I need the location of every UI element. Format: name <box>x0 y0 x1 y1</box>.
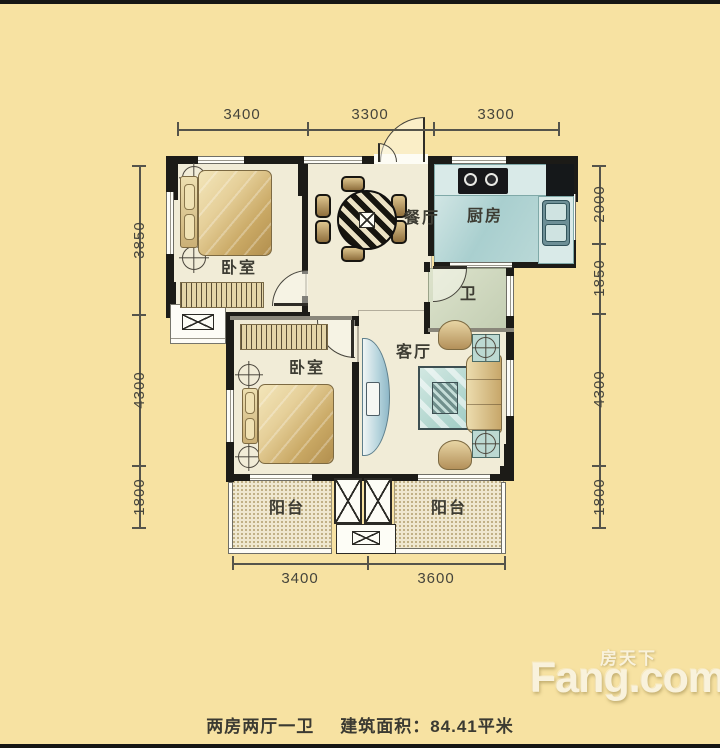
dim-label-bottom: 3600 <box>386 570 486 588</box>
room-label-living: 客厅 <box>390 344 438 362</box>
armchair-icon <box>438 320 472 350</box>
window-dining-top <box>304 156 362 164</box>
balcony-railing <box>501 482 506 554</box>
dim-tick <box>433 122 435 136</box>
dim-line-top <box>177 129 559 131</box>
wall-segment <box>302 162 308 274</box>
top-frame-bar <box>0 0 720 4</box>
bedroom2-door-leaf <box>351 320 354 358</box>
dim-label-top: 3300 <box>320 106 420 124</box>
bay-window-symbol <box>182 314 214 330</box>
dim-label-right: 1800 <box>591 457 609 537</box>
bed-icon <box>258 384 334 464</box>
dim-tick <box>504 556 506 570</box>
room-label-bath: 卫 <box>458 286 480 304</box>
nightstand-icon <box>238 446 260 468</box>
room-label-dining: 餐厅 <box>398 210 446 228</box>
room-label-bedroom1: 卧室 <box>200 260 278 278</box>
caption-layout: 两房两厅一卫 <box>206 717 314 736</box>
burner-icon <box>464 173 477 186</box>
wall-segment <box>352 362 359 478</box>
nightstand-icon <box>238 364 260 386</box>
side-table-symbol <box>475 433 496 454</box>
pillow-icon <box>245 392 255 414</box>
side-table-symbol <box>475 337 496 358</box>
tv-icon <box>366 382 380 416</box>
sink-basin <box>545 224 567 242</box>
dim-label-top: 3300 <box>446 106 546 124</box>
bed-icon <box>198 170 272 256</box>
wall-segment <box>424 262 430 272</box>
dim-label-top: 3400 <box>192 106 292 124</box>
dim-label-right: 4300 <box>591 349 609 429</box>
wardrobe-icon <box>240 324 328 350</box>
pillow-icon <box>184 214 195 240</box>
dim-tick <box>367 556 369 570</box>
balcony-railing <box>228 482 233 552</box>
dim-tick <box>307 122 309 136</box>
balcony-railing <box>228 548 332 554</box>
dim-line-bottom <box>232 563 506 565</box>
room-label-kitchen: 厨房 <box>460 208 510 226</box>
utility-box-symbol <box>352 531 380 545</box>
chair-icon <box>315 194 331 218</box>
dim-tick <box>132 314 146 316</box>
ac-shaft <box>364 478 392 524</box>
window-living-right <box>506 360 514 416</box>
window-bedroom1-top <box>198 156 244 164</box>
table-center-symbol <box>359 212 375 228</box>
burner-icon <box>485 173 498 186</box>
balcony-railing <box>394 548 506 554</box>
room-label-bedroom2: 卧室 <box>268 360 346 378</box>
bedroom1-door-leaf <box>274 303 308 306</box>
window-bath-right <box>506 276 514 316</box>
dim-tick <box>177 122 179 136</box>
room-label-balcony-right: 阳台 <box>424 500 474 518</box>
chair-icon <box>315 220 331 244</box>
dim-label-left: 4300 <box>131 350 149 430</box>
floorplan-image: 卧室 餐厅 厨房 卫 卧室 客厅 阳台 阳台 3400 3300 3300 34… <box>0 0 720 748</box>
fridge-icon <box>546 164 574 196</box>
dim-label-right: 2000 <box>591 164 609 244</box>
balcony-door-living <box>418 474 490 481</box>
window-bedroom2-left <box>226 390 234 442</box>
entrance-door-leaf <box>423 118 425 162</box>
fang-logo-en: Fang.com <box>530 654 720 703</box>
dim-tick <box>558 122 560 136</box>
entrance-door-leaf <box>378 144 380 162</box>
armchair-icon <box>438 440 472 470</box>
window-kitchen-top <box>452 156 506 164</box>
window-bedroom1-left <box>166 192 174 254</box>
caption-area: 建筑面积：84.41平米 <box>340 717 514 736</box>
wardrobe-icon <box>180 282 264 308</box>
bottom-frame-bar <box>0 744 720 748</box>
dim-tick <box>132 165 146 167</box>
dim-tick <box>232 556 234 570</box>
coffee-table-inlay <box>432 382 458 414</box>
pillow-icon <box>184 184 195 210</box>
room-label-balcony-left: 阳台 <box>262 500 312 518</box>
ac-shaft <box>334 478 362 524</box>
balcony-door-bedroom2 <box>250 474 312 481</box>
bath-door-leaf <box>433 266 467 269</box>
dim-label-left: 1800 <box>131 457 149 537</box>
pillow-icon <box>245 418 255 440</box>
dim-label-bottom: 3400 <box>250 570 350 588</box>
wall-segment <box>500 466 514 480</box>
sofa-icon <box>466 354 502 434</box>
wall-segment <box>226 466 234 482</box>
dim-label-right: 1850 <box>591 238 609 318</box>
sink-basin <box>545 203 567 221</box>
fang-logo: 房天下 Fang.com <box>530 644 716 716</box>
dim-label-left: 3850 <box>131 200 149 280</box>
